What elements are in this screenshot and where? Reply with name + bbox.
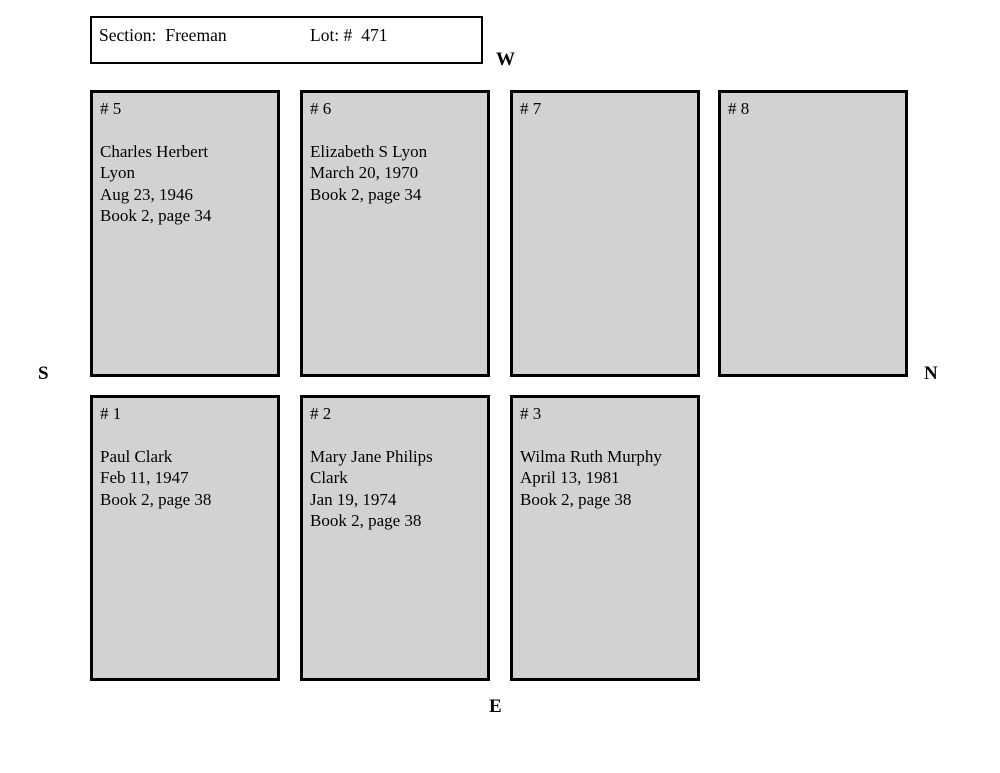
plot-number: # 6 — [303, 93, 487, 120]
compass-east-label: E — [489, 697, 502, 717]
lot-map-page: Section:Freeman Lot: #471 W S N E # 5 Ch… — [0, 0, 1000, 773]
plot-box-5: # 5 Charles Herbert Lyon Aug 23, 1946 Bo… — [90, 90, 280, 377]
plot-box-8: # 8 — [718, 90, 908, 377]
lot-field: Lot: #471 — [310, 25, 388, 46]
compass-north-label: N — [924, 364, 938, 384]
lot-value: 471 — [361, 25, 387, 45]
plot-box-1: # 1 Paul Clark Feb 11, 1947 Book 2, page… — [90, 395, 280, 681]
plot-details: Charles Herbert Lyon Aug 23, 1946 Book 2… — [93, 141, 277, 227]
section-field: Section:Freeman — [99, 25, 227, 46]
plot-details: Elizabeth S Lyon March 20, 1970 Book 2, … — [303, 141, 487, 206]
section-lot-header-box: Section:Freeman Lot: #471 — [90, 16, 483, 64]
compass-south-label: S — [38, 364, 49, 384]
plot-number: # 3 — [513, 398, 697, 425]
plot-details: Wilma Ruth Murphy April 13, 1981 Book 2,… — [513, 446, 697, 511]
section-value: Freeman — [165, 25, 226, 45]
section-label: Section: — [99, 25, 156, 45]
plot-number: # 1 — [93, 398, 277, 425]
plot-box-7: # 7 — [510, 90, 700, 377]
plot-number: # 7 — [513, 93, 697, 120]
plot-number: # 8 — [721, 93, 905, 120]
plot-box-2: # 2 Mary Jane Philips Clark Jan 19, 1974… — [300, 395, 490, 681]
plot-box-3: # 3 Wilma Ruth Murphy April 13, 1981 Boo… — [510, 395, 700, 681]
plot-number: # 2 — [303, 398, 487, 425]
plot-details: Paul Clark Feb 11, 1947 Book 2, page 38 — [93, 446, 277, 511]
lot-label: Lot: # — [310, 25, 352, 45]
plot-box-6: # 6 Elizabeth S Lyon March 20, 1970 Book… — [300, 90, 490, 377]
plot-number: # 5 — [93, 93, 277, 120]
plot-details: Mary Jane Philips Clark Jan 19, 1974 Boo… — [303, 446, 487, 532]
compass-west-label: W — [496, 50, 515, 70]
